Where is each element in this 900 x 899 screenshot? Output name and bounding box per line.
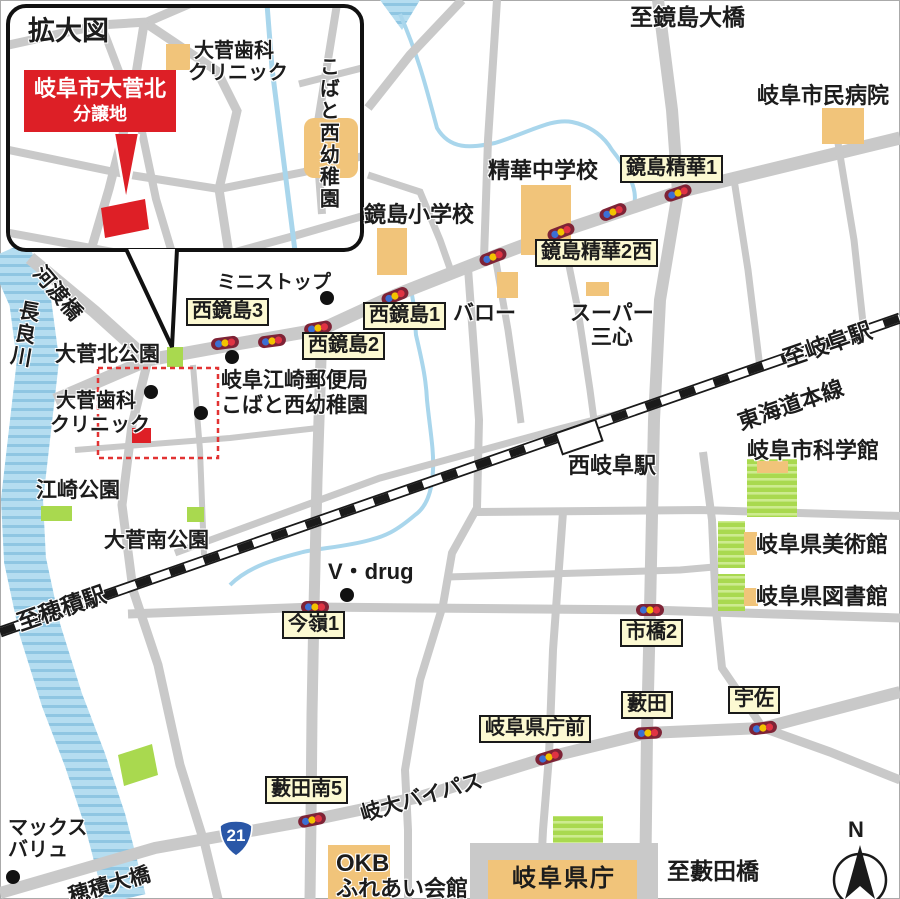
poi-dot-ministop [320, 291, 334, 305]
inset-title: 拡大図 [28, 16, 109, 46]
site-badge-line1: 岐阜市大菅北 [26, 75, 174, 103]
inset-dental-label-line1: 大菅歯科 [194, 40, 274, 62]
inset-enlarged-map: 拡大図 岐阜市大菅北 分譲地 大菅歯科 クリニック こばと西幼稚園 [6, 4, 364, 252]
poi-dot-dental [144, 385, 158, 399]
site-parcel-marker [132, 428, 151, 443]
traffic-signal-icon [634, 726, 663, 739]
poi-dot-post-office [225, 350, 239, 364]
traffic-signal-icon [303, 320, 333, 337]
inset-dental-building [166, 44, 190, 70]
site-badge: 岐阜市大菅北 分譲地 [24, 70, 176, 132]
route-21-shield-icon [220, 821, 252, 856]
traffic-signal-icon [301, 601, 329, 613]
inset-kindergarten-label: こばと西幼稚園 [316, 56, 338, 226]
poi-dot-vdrug [340, 588, 354, 602]
parks-and-green-blocks [41, 347, 797, 843]
poi-dot-kindergarten [194, 406, 208, 420]
compass-north-icon [834, 845, 886, 899]
poi-dot-maxvalu [6, 870, 20, 884]
traffic-signal-icon [636, 604, 664, 616]
site-badge-line2: 分譲地 [26, 103, 174, 126]
poi-dots [6, 291, 354, 884]
inset-dental-label-line2: クリニック [188, 62, 288, 84]
map-canvas: 拡大図 岐阜市大菅北 分譲地 大菅歯科 クリニック こばと西幼稚園 至鏡島大橋 … [0, 0, 900, 899]
